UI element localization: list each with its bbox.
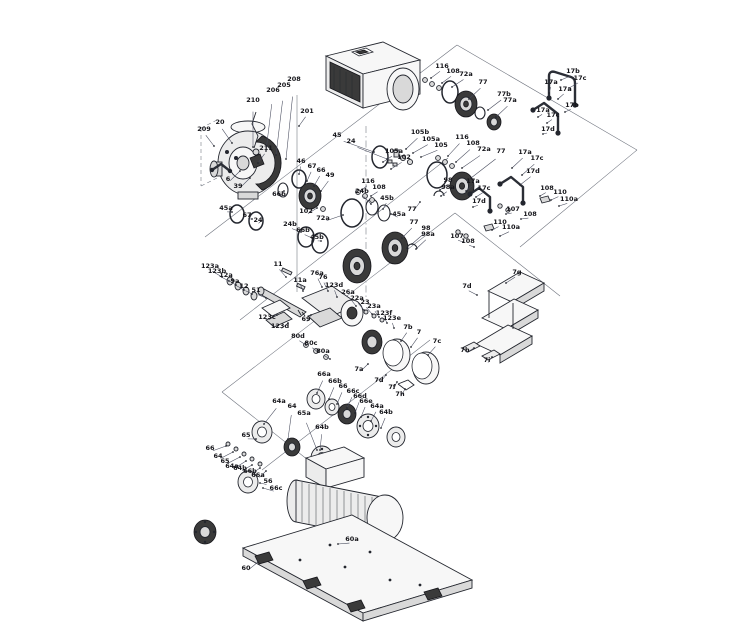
part-label-110a: 110a (560, 195, 578, 203)
callout-leader-66 (314, 176, 320, 186)
coupling-flanges (359, 425, 361, 427)
callout-point-26a (355, 305, 357, 307)
coupling-flanges (367, 416, 369, 418)
part-label-77: 77 (407, 205, 416, 213)
callout-point-51 (265, 297, 267, 299)
hardware-stacks (234, 447, 238, 451)
part-label-66c: 66c (270, 484, 283, 492)
callout-point-7a (367, 363, 369, 365)
vent-pipes (540, 196, 550, 203)
callout-point-64a (245, 460, 247, 462)
part-label-7a: 7a (355, 365, 364, 373)
callout-point-17a (537, 116, 539, 118)
part-label-102: 102 (397, 153, 411, 161)
callout-point-116 (430, 77, 432, 79)
part-label-60a: 60a (345, 535, 358, 543)
callout-point-205 (275, 154, 277, 156)
part-label-72a: 72a (316, 214, 329, 222)
coupling-flanges (325, 399, 339, 415)
callout-leader-77 (471, 159, 496, 178)
part-label-98a: 98a (441, 183, 454, 191)
part-label-17d: 17d (541, 125, 555, 133)
callout-point-66a (265, 470, 267, 472)
impeller-discs (459, 183, 464, 189)
part-label-24: 24 (253, 216, 263, 224)
callout-point-17a (465, 190, 467, 192)
guide-lines (201, 178, 217, 186)
coupling-flanges (392, 433, 400, 442)
part-label-67: 67 (242, 211, 251, 219)
part-label-45a: 45a (219, 204, 232, 212)
part-label-7h: 7h (395, 390, 405, 398)
callout-point-77b (487, 109, 489, 111)
part-label-77a: 77a (503, 96, 516, 104)
part-label-11a: 11a (293, 276, 306, 284)
callout-point-77 (419, 201, 421, 203)
callout-point-11a (302, 290, 304, 292)
callout-point-17d (542, 133, 544, 135)
callout-point-22a (363, 309, 365, 311)
callout-leader-110 (551, 197, 558, 200)
callout-point-66a (316, 392, 318, 394)
shaft-assembly (297, 283, 306, 289)
part-label-123c: 123c (258, 313, 276, 321)
coupling-flanges (387, 427, 405, 447)
impeller-discs (491, 118, 498, 126)
callout-leader-72a (452, 79, 463, 87)
callout-point-76a (321, 286, 323, 288)
hardware-stacks (258, 462, 262, 466)
callout-point-6 (239, 170, 241, 172)
callout-point-66b (328, 398, 330, 400)
vent-pipes (497, 181, 502, 186)
callout-point-64b (380, 427, 382, 429)
part-label-208: 208 (287, 75, 301, 83)
coupling-guard (367, 336, 377, 348)
callout-point-72a (451, 86, 453, 88)
callout-point-17a (511, 167, 513, 169)
sensor-fittings (210, 168, 214, 172)
impeller-discs (392, 245, 398, 252)
guard-brackets (476, 325, 532, 355)
part-label-66: 66 (205, 444, 215, 452)
coupling-flanges (194, 520, 216, 544)
callout-leader-201 (299, 117, 306, 126)
guard-brackets (462, 272, 544, 363)
part-label-7: 7 (417, 328, 422, 336)
guard-brackets (482, 299, 538, 329)
part-label-77: 77 (409, 218, 418, 226)
callout-point-105 (420, 156, 422, 158)
part-label-49: 49 (325, 171, 335, 179)
callout-point-66 (336, 403, 338, 405)
part-label-110a: 110a (502, 223, 520, 231)
part-label-209: 209 (197, 125, 211, 133)
callout-point-77 (468, 98, 470, 100)
impeller-discs (343, 249, 371, 283)
callout-point-49 (320, 190, 322, 192)
hardware-stacks (498, 204, 502, 208)
callout-point-65a (316, 449, 318, 451)
callout-leader-208 (286, 97, 293, 159)
part-label-80d: 80d (291, 332, 305, 340)
callout-point-105a (412, 152, 414, 154)
callout-point-66e (360, 416, 362, 418)
callout-leader-72a (462, 156, 480, 168)
part-label-45b: 45b (380, 194, 394, 202)
part-label-7i: 7i (484, 356, 491, 364)
callout-leader-209 (206, 135, 214, 146)
part-label-64: 64 (287, 402, 297, 410)
callout-point-7g (505, 282, 507, 284)
callout-point-123f (386, 322, 388, 324)
hardware-stacks (423, 78, 428, 83)
callout-leader-77a (496, 106, 507, 117)
callout-leader-17a (512, 158, 523, 168)
callout-leader-66 (337, 392, 342, 404)
callout-leader-66 (213, 446, 226, 451)
part-label-65: 65 (241, 431, 251, 439)
part-label-102: 102 (299, 207, 313, 215)
baseplate (344, 566, 347, 569)
baseplate (243, 515, 472, 621)
part-label-17b: 17b (565, 101, 579, 109)
hardware-stacks (450, 164, 455, 169)
coupling-guard (398, 380, 414, 390)
hardware-stacks (321, 207, 326, 212)
baseplate (419, 584, 422, 587)
callout-leader-110a (500, 232, 509, 236)
callout-leader-49 (321, 181, 328, 191)
coupling-flanges (357, 414, 379, 438)
callout-point-208 (285, 158, 287, 160)
part-label-24: 24 (346, 137, 356, 145)
callout-point-17b (564, 111, 566, 113)
callout-point-7h (473, 347, 475, 349)
callout-leader-67 (307, 172, 311, 181)
hardware-stacks (430, 82, 435, 87)
controller-unit (393, 75, 413, 103)
callout-leader-105a (413, 145, 428, 153)
part-label-7h: 7h (460, 346, 470, 354)
coupling-flanges (258, 427, 267, 437)
callout-point-105a (382, 161, 384, 163)
hardware-stacks (242, 452, 246, 456)
callout-point-7d (385, 374, 387, 376)
callout-point-210 (252, 146, 254, 148)
callout-point-20 (231, 142, 233, 144)
hardware-stacks (436, 156, 441, 161)
part-label-11: 11 (273, 260, 283, 268)
callout-point-64b (319, 449, 321, 451)
callout-point-107 (505, 213, 507, 215)
callout-point-17a (548, 92, 550, 94)
hardware-stacks (324, 355, 329, 360)
sensor-fittings (228, 169, 232, 173)
callout-leader-7b (401, 333, 407, 341)
callout-leader-17a (558, 94, 564, 99)
callout-point-66 (313, 185, 315, 187)
callout-point-66c (262, 487, 264, 489)
hardware-stacks (388, 160, 392, 163)
part-label-39: 39 (233, 182, 243, 190)
callout-point-110a (558, 205, 560, 207)
impeller-discs (464, 101, 469, 107)
callout-point-98a (415, 248, 417, 250)
coupling-flanges (363, 421, 373, 432)
vent-pipes (434, 191, 444, 196)
part-label-7c: 7c (433, 337, 442, 345)
part-label-80a: 80a (316, 347, 329, 355)
coupling-flanges (367, 434, 369, 436)
coupling-flanges (321, 448, 323, 450)
callout-leader-64a (264, 408, 276, 424)
callout-point-77 (401, 237, 403, 239)
part-label-65a: 65a (297, 409, 310, 417)
callout-leader-77b (488, 100, 501, 110)
callout-point-17d (472, 206, 474, 208)
callout-point-66 (225, 445, 227, 447)
coupling-flanges (195, 531, 197, 533)
part-label-7d: 7d (374, 376, 384, 384)
coupling-flanges (338, 404, 356, 424)
callout-point-39 (249, 177, 251, 179)
callout-point-11 (285, 276, 287, 278)
callout-point-102 (390, 168, 392, 170)
callout-point-45 (373, 151, 375, 153)
callout-leader-66b (329, 387, 334, 399)
part-label-64b: 64b (315, 423, 329, 431)
callout-leader-17d (520, 177, 531, 185)
callout-point-60 (257, 561, 259, 563)
callout-point-66b (259, 467, 261, 469)
pump-housing (237, 156, 249, 170)
part-label-210: 210 (246, 96, 260, 104)
pump-housing (238, 192, 258, 199)
part-label-72a: 72a (459, 70, 472, 78)
coupling-flanges (204, 541, 206, 543)
callout-point-108 (370, 195, 372, 197)
callout-point-123c (276, 314, 278, 316)
hardware-stacks (370, 198, 375, 203)
guide-lines (201, 45, 637, 566)
callout-point-123d (336, 296, 338, 298)
part-label-17c: 17c (574, 74, 587, 82)
callout-leader-98a (416, 240, 426, 249)
exploded-diagram: 2092021020620520820121163945244667664966… (0, 0, 752, 632)
callout-point-211 (257, 162, 259, 164)
callout-leader-205 (276, 101, 283, 155)
callout-point-64 (232, 451, 234, 453)
part-label-20: 20 (215, 118, 225, 126)
callout-point-23 (371, 313, 373, 315)
callout-point-108 (441, 82, 443, 84)
part-label-7b: 7b (403, 323, 413, 331)
part-label-123e: 123e (383, 314, 402, 322)
callout-leader-108 (521, 218, 528, 219)
callout-point-65 (255, 438, 257, 440)
vent-pipes (520, 200, 525, 205)
callout-point-65 (239, 456, 241, 458)
callout-point-108 (520, 218, 522, 220)
coupling-flanges (200, 527, 210, 538)
callout-point-110 (550, 199, 552, 201)
part-label-46: 46 (296, 157, 306, 165)
callout-point-17a (557, 98, 559, 100)
part-label-105: 105 (434, 141, 448, 149)
callout-point-46 (298, 173, 300, 175)
callout-point-7d (476, 294, 478, 296)
callout-leader-64b (381, 418, 385, 428)
callout-leader-7 (411, 338, 418, 347)
part-label-9a: 9a (231, 277, 240, 285)
callout-point-64 (287, 438, 289, 440)
callout-leader-108 (540, 193, 546, 196)
part-label-51: 51 (251, 286, 261, 294)
vent-pipes (467, 191, 472, 196)
callout-leader-77 (402, 228, 412, 238)
sensor-fittings (225, 150, 229, 154)
part-label-12: 12 (239, 282, 248, 290)
part-label-77: 77 (478, 78, 487, 86)
coupling-flanges (343, 410, 351, 419)
callout-point-209 (213, 145, 215, 147)
vent-pipes (530, 107, 535, 112)
callout-leader-116 (448, 144, 459, 156)
sensor-fittings (234, 156, 238, 160)
baseplate (329, 544, 332, 547)
part-label-98a: 98a (421, 230, 434, 238)
callout-point-108 (539, 195, 541, 197)
callout-leader-110a (559, 203, 567, 206)
part-label-72a: 72a (477, 145, 490, 153)
coupling-flanges (204, 521, 206, 523)
callout-leader-45b (383, 203, 386, 209)
callout-point-98 (411, 243, 413, 245)
callout-leader-108 (371, 192, 378, 196)
callout-point-7i (491, 356, 493, 358)
callout-point-102 (316, 207, 318, 209)
part-label-24b: 24b (283, 220, 297, 228)
callout-point-123e (393, 327, 395, 329)
part-label-45a: 45a (392, 210, 405, 218)
coupling-flanges (213, 531, 215, 533)
callout-point-72a (461, 167, 463, 169)
callout-point-76 (327, 290, 329, 292)
coupling-flanges (312, 395, 320, 404)
impeller-discs (354, 262, 360, 270)
coupling-guard (412, 353, 432, 379)
part-label-17c: 17c (531, 154, 544, 162)
callout-point-80a (329, 358, 331, 360)
part-label-108: 108 (540, 184, 554, 192)
part-label-45b: 45b (310, 233, 324, 241)
part-label-77: 77 (496, 147, 505, 155)
part-label-17c: 17c (478, 184, 491, 192)
part-label-108: 108 (446, 67, 460, 75)
impeller-discs (308, 193, 313, 199)
part-label-6: 6 (226, 175, 231, 183)
coupling-flanges (307, 389, 325, 409)
impeller-discs (487, 114, 501, 130)
callout-leader-7d (469, 291, 477, 295)
callout-point-77a (495, 116, 497, 118)
callout-point-17c (546, 122, 548, 124)
callout-point-108 (455, 161, 457, 163)
callout-leader-64 (288, 415, 291, 439)
coupling-flanges (329, 404, 335, 411)
baseplate (369, 551, 372, 554)
callout-leader-108 (456, 150, 470, 162)
callout-point-7c (427, 354, 429, 356)
callout-point-64a (370, 420, 372, 422)
vent-pipes (487, 208, 492, 213)
impeller-discs (299, 183, 321, 209)
vent-pipes (500, 177, 523, 203)
part-label-64a: 64a (272, 397, 285, 405)
callout-point-108 (473, 246, 475, 248)
part-label-66b: 66b (296, 226, 310, 234)
part-label-107: 107 (506, 205, 520, 213)
part-label-211: 211 (259, 144, 273, 152)
callout-point-7 (410, 346, 412, 348)
coupling-flanges (375, 425, 377, 427)
callout-point-60a (337, 543, 339, 545)
part-label-201: 201 (300, 107, 314, 115)
coupling-flanges (284, 438, 300, 456)
o-rings (341, 199, 363, 227)
vent-pipes (555, 130, 560, 135)
impeller-discs (382, 232, 408, 264)
part-label-80c: 80c (305, 339, 318, 347)
hardware-stacks (250, 457, 254, 461)
callout-point-56 (259, 482, 261, 484)
hardware-stacks (437, 86, 442, 91)
callout-leader-105 (421, 150, 437, 157)
part-label-108: 108 (523, 210, 537, 218)
part-label-7g: 7g (512, 268, 522, 276)
callout-point-98a (440, 195, 442, 197)
guide-lines (520, 150, 637, 247)
callout-point-7b (400, 340, 402, 342)
part-label-17a: 17a (558, 85, 571, 93)
callout-point-7f (396, 381, 398, 383)
coupling-guard (362, 330, 382, 354)
part-label-17c: 17c (547, 111, 560, 119)
callout-point-17d (519, 184, 521, 186)
coupling-guard (383, 340, 403, 366)
coupling-flanges (252, 421, 272, 443)
part-label-69: 69 (301, 315, 311, 323)
baseplate (389, 579, 392, 582)
baseplate (299, 559, 302, 562)
callout-point-24b (370, 203, 372, 205)
part-label-17a: 17a (544, 78, 557, 86)
callout-point-201 (298, 125, 300, 127)
callout-point-110a (499, 235, 501, 237)
part-label-45: 45 (332, 131, 342, 139)
callout-point-64a (263, 423, 265, 425)
part-label-17d: 17d (472, 197, 486, 205)
part-label-24b: 24b (355, 187, 369, 195)
vent-pipes (546, 95, 551, 100)
part-label-64b: 64b (379, 408, 393, 416)
callout-point-17b (560, 79, 562, 81)
part-label-60: 60 (241, 564, 251, 572)
callout-point-17c (521, 174, 523, 176)
coupling-flanges (289, 443, 296, 451)
part-label-7d: 7d (462, 282, 472, 290)
